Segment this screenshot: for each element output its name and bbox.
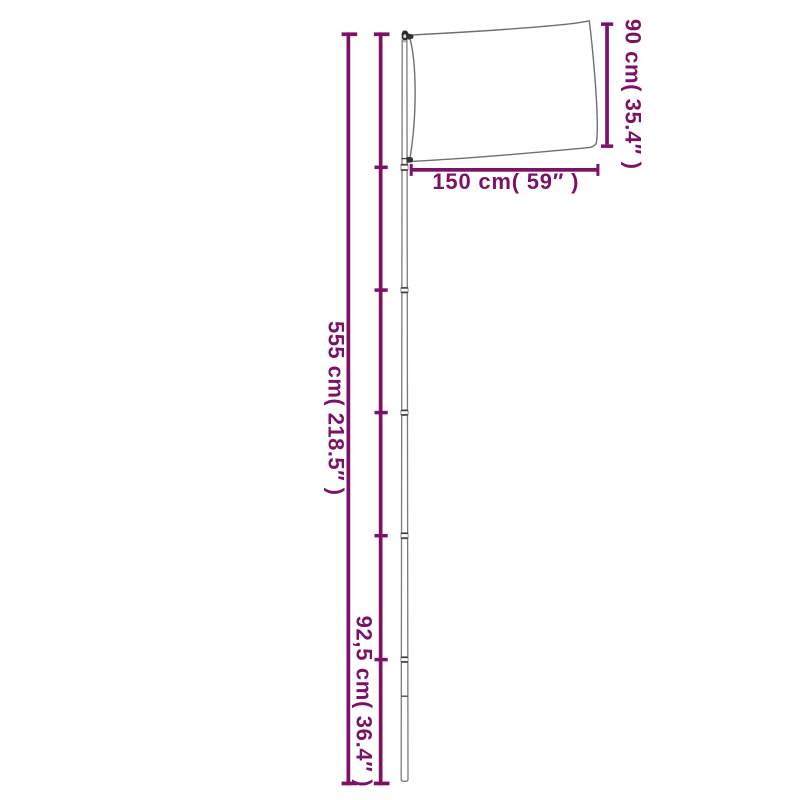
svg-text:555 cm( 218.5″ ): 555 cm( 218.5″ ): [323, 321, 348, 495]
svg-text:90 cm( 35.4″ ): 90 cm( 35.4″ ): [621, 19, 646, 169]
svg-text:92,5 cm( 36.4″ ): 92,5 cm( 36.4″ ): [352, 616, 377, 787]
svg-text:150 cm( 59″ ): 150 cm( 59″ ): [432, 169, 578, 194]
